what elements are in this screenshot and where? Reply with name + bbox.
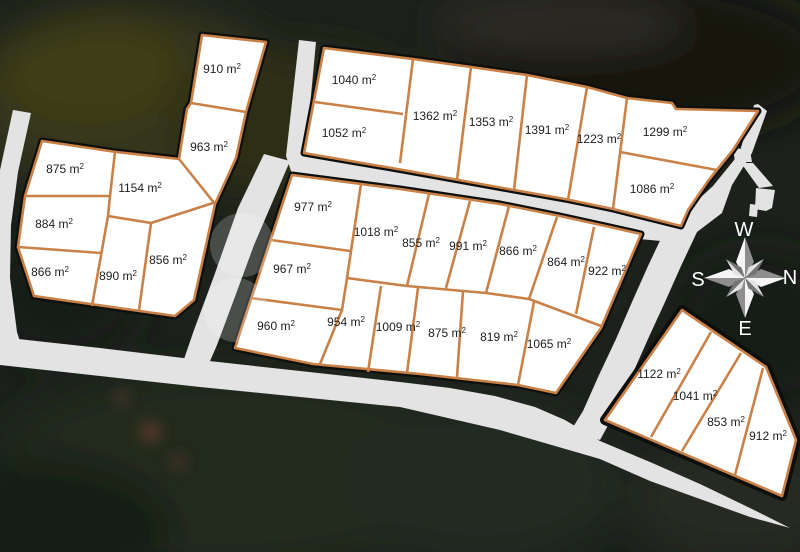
- svg-text:E: E: [738, 318, 751, 340]
- svg-text:875 m2: 875 m2: [428, 326, 466, 340]
- svg-text:W: W: [735, 219, 754, 241]
- svg-text:1223 m2: 1223 m2: [577, 132, 622, 146]
- svg-text:N: N: [783, 267, 797, 289]
- svg-text:884 m2: 884 m2: [35, 217, 73, 231]
- svg-text:1122 m2: 1122 m2: [637, 367, 681, 381]
- svg-text:S: S: [691, 269, 704, 291]
- svg-text:922 m2: 922 m2: [588, 264, 626, 278]
- svg-text:1391 m2: 1391 m2: [525, 123, 570, 137]
- svg-text:1009 m2: 1009 m2: [376, 320, 421, 334]
- svg-text:954 m2: 954 m2: [327, 315, 365, 329]
- svg-text:1065 m2: 1065 m2: [527, 337, 572, 351]
- svg-text:866 m2: 866 m2: [31, 265, 69, 279]
- svg-text:1362 m2: 1362 m2: [413, 109, 458, 123]
- svg-text:1018 m2: 1018 m2: [354, 225, 399, 239]
- svg-text:912 m2: 912 m2: [749, 429, 787, 443]
- svg-text:1052 m2: 1052 m2: [322, 126, 367, 140]
- svg-text:1041 m2: 1041 m2: [673, 389, 718, 403]
- svg-text:864 m2: 864 m2: [547, 255, 585, 269]
- svg-text:819 m2: 819 m2: [480, 330, 518, 344]
- svg-text:855 m2: 855 m2: [402, 236, 440, 250]
- svg-text:967 m2: 967 m2: [273, 262, 311, 276]
- svg-text:853 m2: 853 m2: [707, 415, 745, 429]
- svg-text:875 m2: 875 m2: [46, 162, 84, 176]
- svg-text:977 m2: 977 m2: [294, 200, 332, 214]
- svg-text:991 m2: 991 m2: [449, 239, 487, 253]
- svg-text:1086 m2: 1086 m2: [630, 182, 675, 196]
- svg-text:910 m2: 910 m2: [203, 62, 241, 76]
- svg-text:1353 m2: 1353 m2: [469, 115, 514, 129]
- svg-text:856 m2: 856 m2: [149, 253, 187, 267]
- svg-text:963 m2: 963 m2: [190, 140, 228, 154]
- svg-text:1299 m2: 1299 m2: [643, 125, 688, 139]
- svg-text:890 m2: 890 m2: [99, 269, 137, 283]
- svg-text:1040 m2: 1040 m2: [332, 73, 377, 87]
- svg-text:960 m2: 960 m2: [257, 319, 295, 333]
- svg-text:866 m2: 866 m2: [499, 244, 537, 258]
- svg-text:1154 m2: 1154 m2: [118, 181, 162, 195]
